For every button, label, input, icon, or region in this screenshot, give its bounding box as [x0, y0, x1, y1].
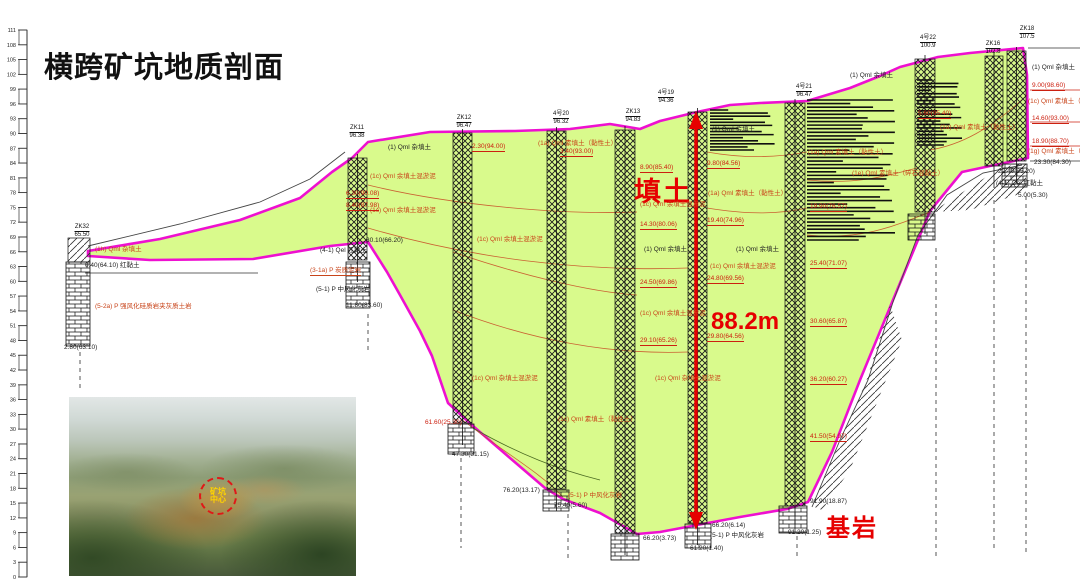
ruler-value: 93 [10, 117, 16, 123]
strata-label: 9.80(84.56) [707, 161, 740, 169]
borehole-top-label: ZK1296.47 [456, 115, 471, 130]
strata-label: (1c) Qml 杂填土混淤泥 [472, 376, 538, 383]
borehole-top-label: 4号1994.36 [658, 90, 674, 105]
ruler-value: 72 [10, 220, 16, 226]
ruler-box [19, 414, 27, 429]
strata-label: (4-1) Qel 红黏土 [996, 181, 1043, 188]
ruler-value: 30 [10, 427, 16, 433]
strata-label: 6.30(90.08) [346, 191, 379, 199]
ruler-value: 81 [10, 176, 16, 182]
ruler-box [19, 503, 27, 518]
strata-label: 2.80(63.10) [64, 345, 97, 352]
strata-label: (1c) Qml 余填土混淤泥 [640, 311, 706, 318]
page-title: 横跨矿坑地质剖面 [44, 44, 284, 86]
strata-label: 29.10(65.26) [640, 338, 677, 346]
strata-label: (1c) Qml 余填土混淤泥 [710, 264, 776, 271]
strata-label: 24.50(69.86) [640, 280, 677, 288]
ruler-value: 57 [10, 294, 16, 300]
ruler-value: 111 [8, 28, 16, 34]
ruler-box [19, 89, 27, 104]
ruler-value: 99 [10, 87, 16, 93]
ruler-value: 18 [10, 486, 16, 492]
ruler-value: 48 [10, 338, 16, 344]
strata-label: (4-1) Qel 红黏土 [320, 248, 367, 255]
strata-label: 8.40(87.98) [346, 203, 379, 211]
ruler-box [19, 385, 27, 400]
ruler-value: 78 [10, 191, 16, 197]
strata-label: 19.90(76.57) [810, 204, 847, 212]
borehole-top-label: ZK16102.8 [985, 41, 1000, 56]
strata-label: (1c) Qml 余填土混淤泥 [477, 237, 543, 244]
strata-label: 75.40(5.60) [554, 503, 587, 510]
strata-label: (1) Qml 杂填土 [388, 145, 431, 152]
strata-label: (1) Qml 余填土 [712, 127, 755, 134]
strata-label: (1a) Qml 素填土（黏性土） [940, 125, 1019, 132]
pit-center-circle-annotation: 矿坑 中心 [199, 477, 237, 515]
strata-label: (5-1) P 中风化灰岩 [316, 287, 370, 294]
strata-label: (1) Qml 余填土 [850, 73, 893, 80]
ruler-box [19, 148, 27, 163]
strata-label: 24.80(69.56) [707, 276, 744, 284]
strata-label: 14.60(93.00) [1032, 116, 1069, 124]
strata-label: 11.80(83.60) [346, 303, 382, 310]
borehole-column [68, 238, 90, 262]
slide-canvas: 1111081051029996939087848178757269666360… [0, 0, 1080, 587]
borehole-top-label: 4号22100.9 [920, 35, 936, 50]
ruler-value: 36 [10, 398, 16, 404]
ruler-value: 87 [10, 146, 16, 152]
strata-label: 61.20(1.40) [690, 546, 723, 553]
ruler-value: 96 [10, 102, 16, 108]
ruler-value: 63 [10, 265, 16, 271]
ruler-value: 39 [10, 383, 16, 389]
strata-label: 5.60(95.40) [918, 111, 951, 119]
ruler-box [19, 326, 27, 341]
strata-label: 2.30(94.00) [472, 144, 505, 152]
strata-label: (1c) Qml 素填土（淤 [1028, 99, 1080, 106]
strata-label: 61.60(25.30) [425, 420, 462, 427]
strata-label: (1h) Qml 杂填土 [95, 247, 142, 254]
strata-label: (1a) Qml 素填土（黏性土） [538, 141, 617, 148]
ruler-value: 27 [10, 442, 16, 448]
ruler-value: 33 [10, 412, 16, 418]
ruler-box [19, 533, 27, 548]
ruler-value: 102 [7, 72, 16, 78]
ruler-box [19, 237, 27, 252]
strata-label: (1a) Qml 素填土（黏性土） [708, 191, 787, 198]
strata-label: (1c) Qml 余填土混淤泥 [370, 208, 436, 215]
strata-label: (1c) Qml 余填土混淤泥 [640, 202, 706, 209]
ruler-box [19, 444, 27, 459]
ruler-value: 90 [10, 131, 16, 137]
ruler-value: 15 [10, 501, 16, 507]
strata-label: 23.30(84.30) [1034, 160, 1071, 167]
strata-label: 18.90(88.70) [1032, 139, 1069, 147]
strata-label: 9.00(98.60) [1032, 83, 1065, 91]
ruler-value: 54 [10, 309, 16, 315]
strata-label: 19.40(74.96) [707, 218, 744, 226]
strata-label: (5-1) P 中风化灰岩 [568, 493, 622, 500]
aerial-photo: 矿坑 中心 [69, 397, 356, 576]
strata-label: 22.40(85.20) [998, 169, 1035, 176]
strata-label: 91.90(18.87) [810, 499, 847, 506]
strata-label: (3-1a) P 炭质泥岩 [310, 268, 361, 276]
ruler-value: 60 [10, 279, 16, 285]
ruler-value: 24 [10, 457, 16, 463]
ruler-box [19, 474, 27, 489]
strata-label: (1) Qml 余填土 [736, 247, 779, 254]
strata-label: (5-1) P 中风化灰岩 [710, 533, 764, 540]
ruler-box [19, 60, 27, 75]
ruler-value: 42 [10, 368, 16, 374]
strata-label: 66.20(3.73) [643, 536, 676, 543]
ruler-box [19, 207, 27, 222]
ruler-box [19, 119, 27, 134]
strata-label: 47.30(31.15) [452, 452, 489, 459]
ruler-box [19, 178, 27, 193]
strata-label: 30.10(66.20) [366, 238, 403, 245]
ruler-value: 21 [10, 472, 16, 478]
ruler-box [19, 562, 27, 577]
ruler-value: 69 [10, 235, 16, 241]
bedrock-block [448, 424, 474, 454]
ruler-value: 9 [13, 531, 16, 537]
strata-label: (1) Qml 余填土 [644, 247, 687, 254]
ruler-value: 45 [10, 353, 16, 359]
ruler-value: 3 [13, 560, 16, 566]
ruler-box [19, 296, 27, 311]
ruler-value: 105 [7, 58, 16, 64]
ruler-value: 66 [10, 250, 16, 256]
strata-label: (1c) Qml 杂填土混淤泥 [655, 376, 721, 383]
strata-label: 91.20(1.25) [788, 530, 821, 537]
strata-label: (1a) Qml 素填土（黏性土） [808, 150, 887, 157]
bedrock-block [66, 262, 90, 346]
borehole-top-label: ZK3265.50 [74, 224, 89, 239]
ruler-box [19, 30, 27, 45]
ruler-value: 51 [10, 324, 16, 330]
pit-center-label: 矿坑 中心 [210, 488, 226, 505]
depth-annotation: 88.2m [711, 308, 779, 336]
ruler-value: 12 [10, 516, 16, 522]
ruler-value: 108 [7, 43, 16, 49]
strata-label: 41.50(54.97) [810, 434, 847, 442]
borehole-top-label: ZK1394.83 [625, 109, 640, 124]
borehole-top-label: 4号2096.32 [553, 111, 569, 126]
strata-label: 29.80(64.56) [707, 334, 744, 342]
ruler-value: 84 [10, 161, 16, 167]
ruler-box [19, 267, 27, 282]
strata-label: 8.90(85.40) [640, 165, 673, 173]
strata-label: (1c) Qml 素填土（黏性土） [558, 417, 637, 424]
strata-label: (1g) Qml 素填土（淤 [1028, 149, 1080, 156]
strata-label: (1c) Qml 余填土混淤泥 [370, 174, 436, 181]
borehole-top-label: ZK1196.38 [349, 125, 364, 140]
bedrock-block [611, 534, 639, 560]
bedrock-annotation: 基岩 [826, 508, 878, 543]
strata-label: 76.20(13.17) [503, 488, 540, 495]
borehole-top-label: 4号2196.47 [796, 84, 812, 99]
strata-label: 36.20(60.27) [810, 377, 847, 385]
strata-label: (1) Qml 杂填土 [1032, 65, 1075, 72]
ruler-value: 6 [13, 545, 16, 551]
strata-label: 14.30(80.06) [640, 222, 677, 230]
strata-label: 5.00(5.30) [1018, 193, 1048, 200]
ruler-value: 75 [10, 205, 16, 211]
strata-label: 3.40(93.00) [560, 149, 593, 157]
strata-label: (1e) Qml 素填土（碎石混黏土） [852, 171, 944, 178]
strata-label: 30.60(65.87) [810, 319, 847, 327]
borehole-top-label: ZK18107.5 [1019, 26, 1034, 41]
bedrock-block [908, 214, 935, 240]
strata-label: 25.40(71.07) [810, 261, 847, 269]
strata-label: 66.20(6.14) [712, 523, 745, 530]
ruler-box [19, 355, 27, 370]
strata-label: (5-2a) P 强风化硅质岩夹灰质土岩 [95, 304, 192, 311]
strata-label: 0.40(64.10) 红黏土 [85, 263, 140, 270]
ruler-value: 0 [13, 575, 16, 581]
